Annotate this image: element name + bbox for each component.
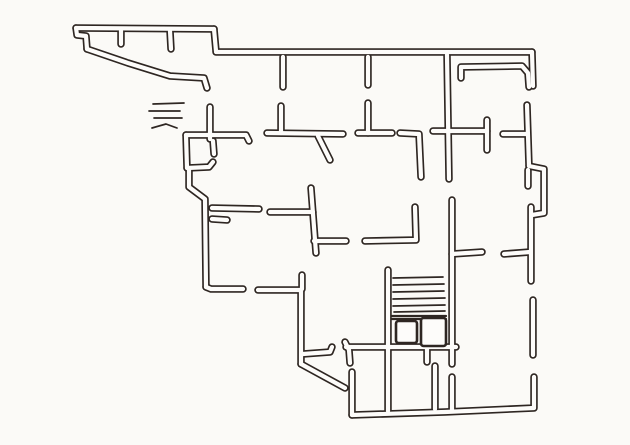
- stair-right-arm-core: [452, 252, 482, 254]
- wing-top-wall-core: [76, 28, 214, 29]
- under-stair-box-right: [421, 318, 446, 346]
- tread-3: [393, 291, 444, 292]
- hatch-line-1: [153, 103, 184, 104]
- right-room-wall-core: [504, 252, 530, 254]
- left-room-arm-long-core: [212, 208, 259, 209]
- floor-plan-sketch: [0, 0, 630, 445]
- right-wall-segment-a-core: [527, 105, 529, 166]
- left-pier-hook-core: [213, 141, 214, 154]
- wing-stub-b-core: [170, 31, 171, 49]
- tread-2: [393, 284, 444, 285]
- top-step-joint-core: [214, 29, 216, 51]
- tread-5: [393, 305, 445, 306]
- tread-4: [393, 298, 445, 299]
- left-room-arm-short-core: [212, 219, 227, 220]
- top-right-corner-core: [532, 52, 533, 86]
- row2-wall-mid-segment-core: [267, 133, 343, 134]
- tread-6: [394, 311, 445, 312]
- under-stair-box-left: [396, 321, 417, 343]
- floor-plan-svg: [0, 0, 630, 445]
- under-stair-boxes: [396, 318, 446, 346]
- left-wing-bottom-wall-core: [206, 287, 243, 289]
- bay-left-wall-core: [186, 135, 187, 168]
- tread-1: [393, 277, 443, 278]
- center-cross-wall-core: [447, 55, 449, 179]
